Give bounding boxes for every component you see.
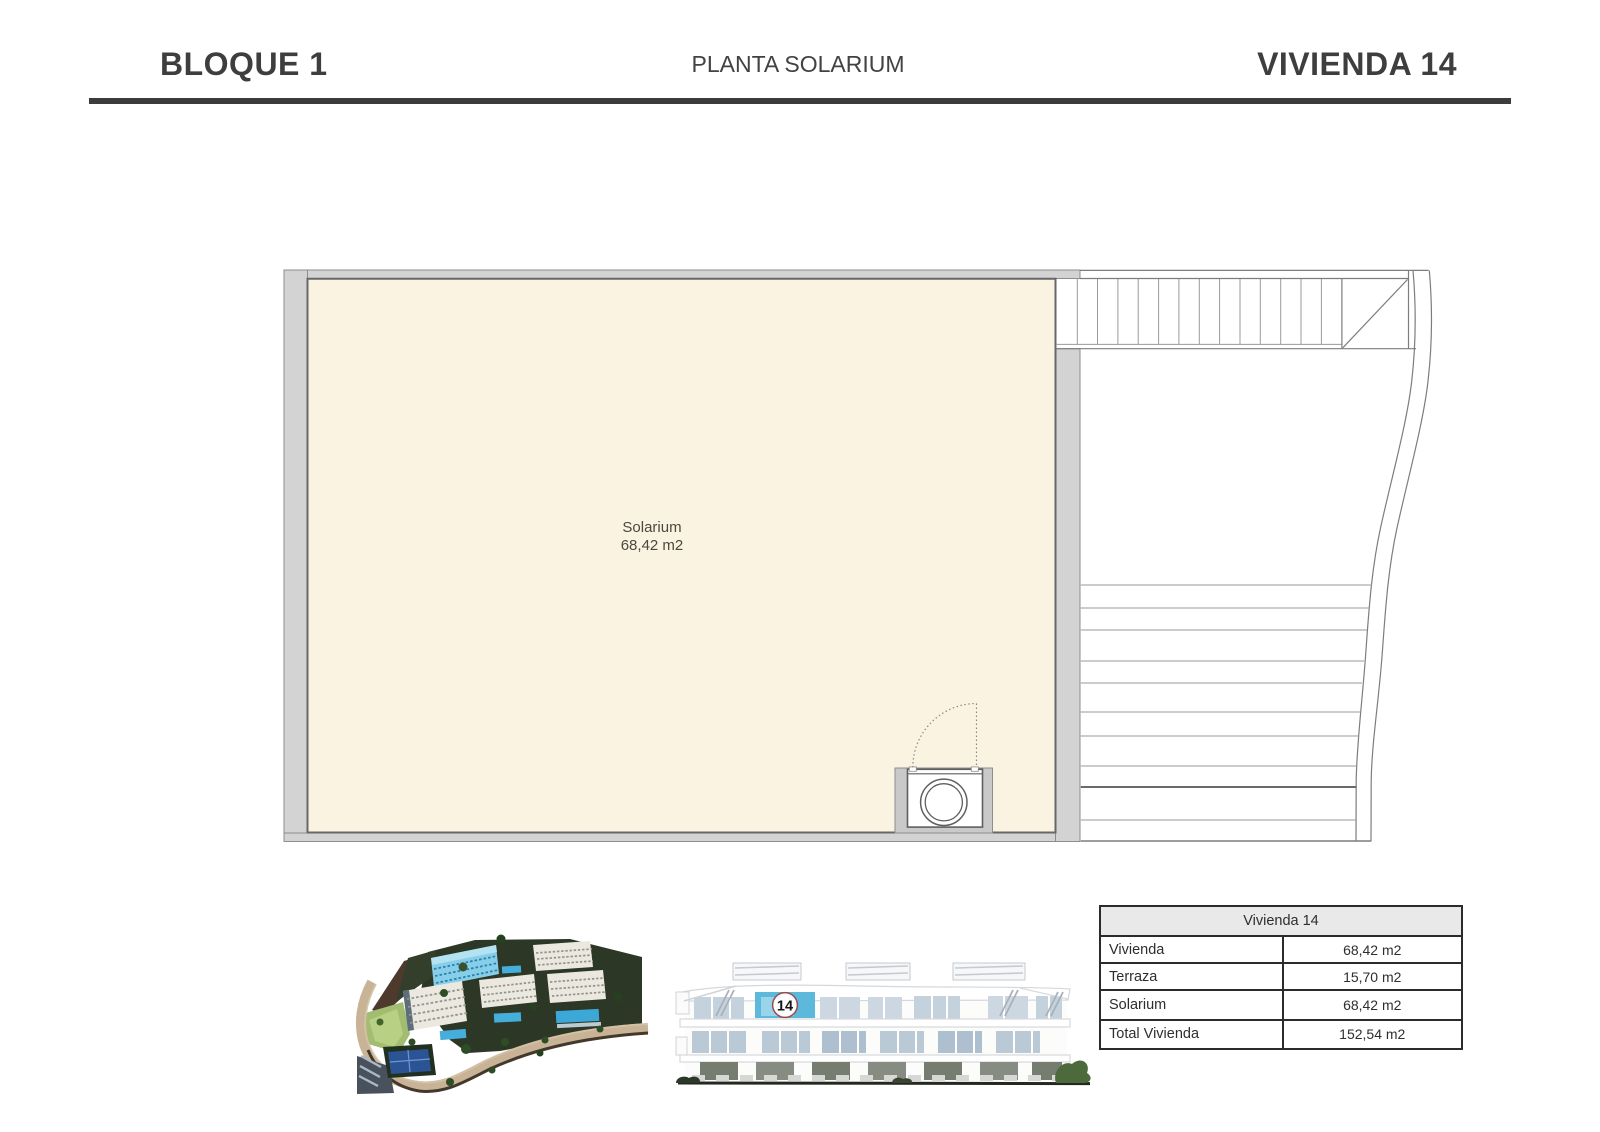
svg-text:14: 14 bbox=[777, 998, 793, 1014]
